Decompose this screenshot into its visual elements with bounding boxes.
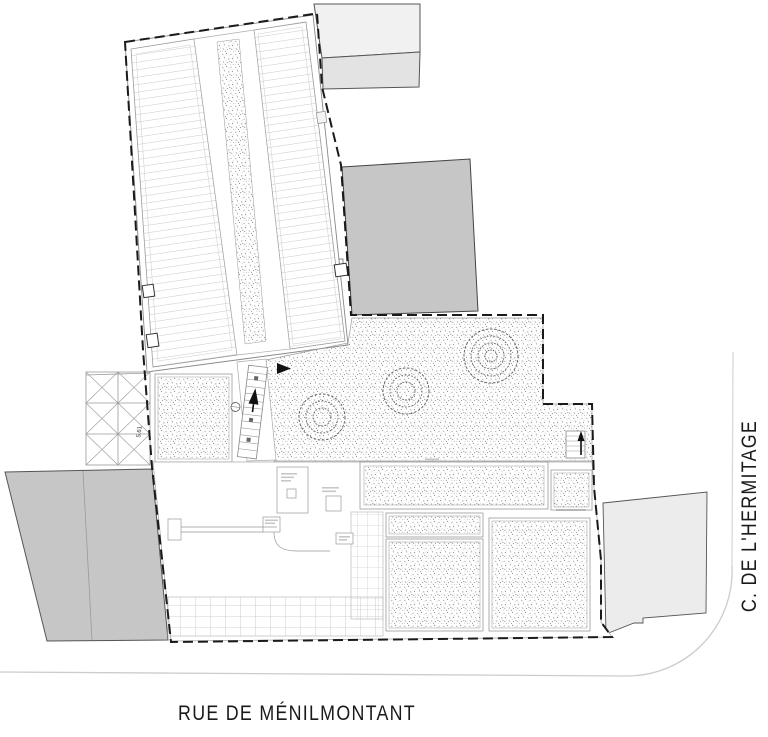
terrace-bed-small-right	[551, 470, 592, 511]
dimension-label: 5.61	[136, 425, 143, 438]
terrace-bed-lower-right	[489, 518, 590, 631]
stair-right	[566, 431, 585, 458]
garden-bed-left	[155, 374, 232, 462]
main-building-roof	[125, 15, 348, 372]
street-name-right: C. DE L'HERMITAGE	[738, 420, 762, 612]
site-plan: 5.61 RUE DE MÉNILMONTANT C. DE L'HERMITA…	[0, 0, 768, 737]
neighbor-building-bottom-right	[603, 492, 707, 634]
roof-skylight	[334, 263, 348, 277]
roof-vent	[316, 111, 326, 123]
terrace-bed-horizontal	[360, 462, 548, 509]
street-name-bottom: RUE DE MÉNILMONTANT	[178, 701, 416, 726]
neighbor-building-bottom-left	[5, 469, 168, 641]
terrace-bed-mid	[386, 513, 483, 537]
roof-skylight	[142, 284, 155, 297]
paving-grid-bottom	[168, 597, 383, 636]
site-plan-drawing: 5.61 RUE DE MÉNILMONTANT C. DE L'HERMITA…	[0, 0, 768, 737]
neighbor-building-top	[314, 4, 420, 89]
neighbor-building-right	[333, 159, 478, 315]
roof-skylight	[146, 333, 159, 347]
trellis-canopy	[86, 372, 150, 465]
terrace-bed-lower-left	[386, 539, 483, 631]
